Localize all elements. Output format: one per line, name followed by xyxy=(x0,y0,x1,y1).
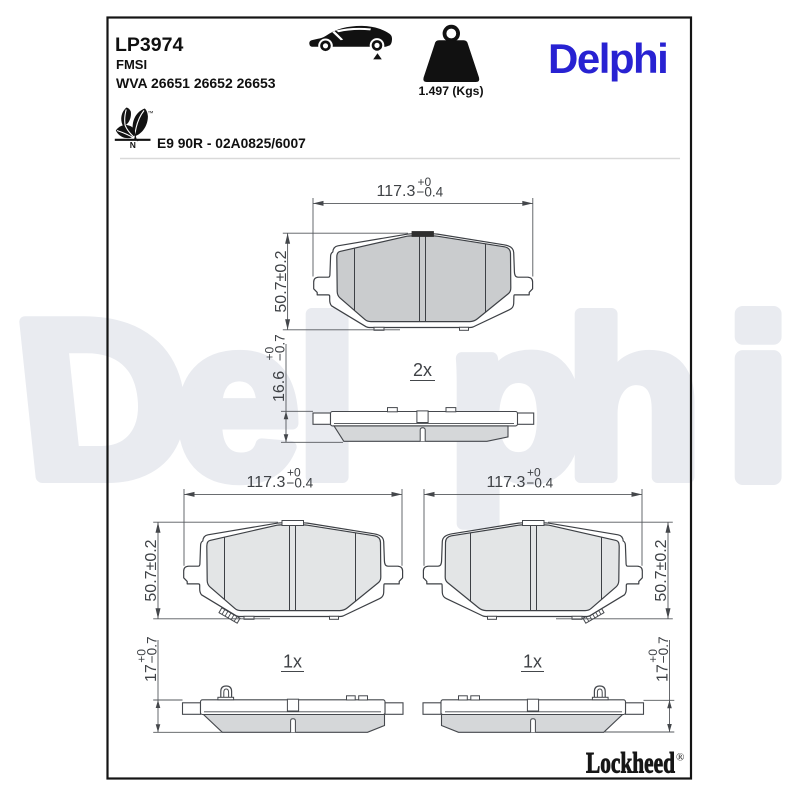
svg-text:17: 17 xyxy=(655,664,672,682)
svg-text:2x: 2x xyxy=(413,360,432,380)
svg-text:117.3: 117.3 xyxy=(247,474,286,491)
svg-text:117.3: 117.3 xyxy=(487,474,526,491)
svg-text:Lockheed: Lockheed xyxy=(586,747,675,780)
svg-text:−0.7: −0.7 xyxy=(145,637,160,664)
svg-text:50.7±0.2: 50.7±0.2 xyxy=(273,250,290,312)
svg-text:−0.4: −0.4 xyxy=(287,476,314,491)
svg-text:1.497 (Kgs): 1.497 (Kgs) xyxy=(418,84,483,98)
svg-text:FMSI: FMSI xyxy=(116,57,147,72)
svg-text:−0.7: −0.7 xyxy=(273,334,288,361)
svg-text:16.6: 16.6 xyxy=(271,371,288,402)
svg-text:®: ® xyxy=(676,752,684,764)
svg-text:Delphi: Delphi xyxy=(548,35,667,82)
svg-text:1x: 1x xyxy=(523,652,542,672)
svg-text:WVA 26651 26652 26653: WVA 26651 26652 26653 xyxy=(116,75,276,91)
svg-text:™: ™ xyxy=(148,110,154,117)
svg-text:−0.4: −0.4 xyxy=(527,476,554,491)
svg-text:117.3: 117.3 xyxy=(377,183,416,200)
svg-text:1x: 1x xyxy=(283,652,302,672)
svg-text:17: 17 xyxy=(143,664,160,682)
svg-text:N: N xyxy=(130,140,136,150)
svg-text:50.7±0.2: 50.7±0.2 xyxy=(653,539,670,601)
svg-text:50.7±0.2: 50.7±0.2 xyxy=(143,539,160,601)
svg-text:−0.7: −0.7 xyxy=(656,637,671,664)
svg-text:−0.4: −0.4 xyxy=(417,185,444,200)
svg-text:i: i xyxy=(727,273,790,525)
svg-text:LP3974: LP3974 xyxy=(115,34,183,56)
svg-text:E9 90R - 02A0825/6007: E9 90R - 02A0825/6007 xyxy=(157,136,306,151)
svg-text:D: D xyxy=(5,274,201,525)
